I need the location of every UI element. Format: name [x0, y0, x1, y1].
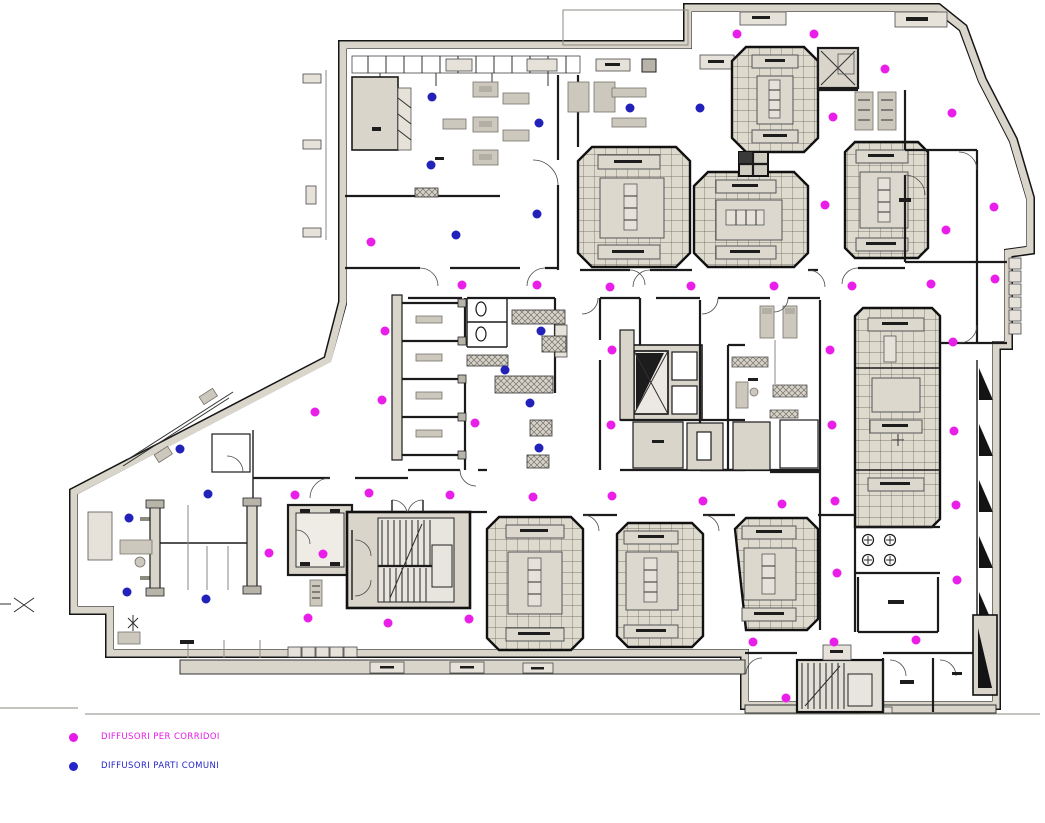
corridor-diffuser-dot [942, 226, 951, 235]
corridor-diffuser-dot-icon [68, 732, 79, 743]
corridor-diffuser-swatch [69, 733, 78, 742]
common-diffuser-dot [696, 104, 705, 113]
corridor-diffuser-dot [810, 30, 819, 39]
corridor-diffuser-dot [384, 619, 393, 628]
corridor-diffuser-dot [533, 281, 542, 290]
corridor-diffuser-dot [990, 203, 999, 212]
corridor-diffuser-dot [529, 493, 538, 502]
common-diffuser-dot [533, 210, 542, 219]
corridor-diffuser-dot [265, 549, 274, 558]
common-diffuser-dot [535, 444, 544, 453]
corridor-diffuser-dot [828, 421, 837, 430]
tiled-room [487, 517, 583, 650]
corridor-diffuser-dot [881, 65, 890, 74]
legend-label-common: DIFFUSORI PARTI COMUNI [101, 761, 219, 771]
main-stairwell [347, 500, 470, 608]
corridor-diffuser-dot [826, 346, 835, 355]
corridor-diffuser-dot [829, 113, 838, 122]
corridor-diffuser-dot [991, 275, 1000, 284]
corridor-diffuser-dot [912, 636, 921, 645]
corridor-diffuser-dot [948, 109, 957, 118]
corridor-diffuser-dot [465, 615, 474, 624]
common-diffuser-dot [452, 231, 461, 240]
corridor-diffuser-dot [782, 694, 791, 703]
common-diffuser-dot [428, 93, 437, 102]
corridor-diffuser-dot [367, 238, 376, 247]
corridor-diffuser-dot [381, 327, 390, 336]
corridor-diffuser-dot [831, 497, 840, 506]
common-diffuser-dot-icon [68, 761, 79, 772]
corridor-diffuser-dot [378, 396, 387, 405]
legend-item-common-diffusers: DIFFUSORI PARTI COMUNI [68, 759, 220, 773]
corridor-diffuser-dot [304, 614, 313, 623]
corridor-diffuser-dot [733, 30, 742, 39]
corridor-diffuser-dot [458, 281, 467, 290]
common-diffuser-swatch [69, 762, 78, 771]
corridor-diffuser-dot [687, 282, 696, 291]
corridor-diffuser-dot [770, 282, 779, 291]
corridor-diffuser-dot [749, 638, 758, 647]
corridor-diffuser-dot [608, 492, 617, 501]
common-diffuser-dot [125, 514, 134, 523]
corridor-diffuser-dot [830, 638, 839, 647]
corridor-diffuser-dot [927, 280, 936, 289]
common-diffuser-dot [204, 490, 213, 499]
corridor-diffuser-dot [821, 201, 830, 210]
corridor-diffuser-dot [952, 501, 961, 510]
common-diffuser-dot [427, 161, 436, 170]
corridor-diffuser-dot [446, 491, 455, 500]
common-diffuser-dot [626, 104, 635, 113]
corridor-diffuser-dot [699, 497, 708, 506]
tiled-room [845, 142, 928, 258]
corridor-diffuser-dot [607, 421, 616, 430]
common-diffuser-dot [537, 327, 546, 336]
tiled-room [732, 47, 818, 152]
common-diffuser-dot [535, 119, 544, 128]
corridor-diffuser-dot [949, 338, 958, 347]
corridor-diffuser-dot [778, 500, 787, 509]
corridor-diffuser-dot [950, 427, 959, 436]
common-diffuser-dot [176, 445, 185, 454]
tiled-room [855, 308, 940, 527]
tiled-room [694, 172, 808, 267]
tiled-room [617, 523, 703, 647]
storage-room [352, 77, 398, 150]
tiled-room [578, 147, 690, 267]
corridor-diffuser-dot [319, 550, 328, 559]
common-diffuser-dot [202, 595, 211, 604]
corridor-diffuser-dot [311, 408, 320, 417]
corridor-diffuser-dot [848, 282, 857, 291]
corridor-diffuser-dot [291, 491, 300, 500]
tiled-room [735, 518, 818, 630]
legend: DIFFUSORI PER CORRIDOI DIFFUSORI PARTI C… [68, 730, 220, 788]
floor-plan-drawing [0, 0, 1045, 823]
corridor-diffuser-dot [608, 346, 617, 355]
common-diffuser-dot [526, 399, 535, 408]
common-diffuser-dot [501, 366, 510, 375]
corridor-diffuser-dot [953, 576, 962, 585]
legend-item-corridor-diffusers: DIFFUSORI PER CORRIDOI [68, 730, 220, 744]
floor-plan-page: DIFFUSORI PER CORRIDOI DIFFUSORI PARTI C… [0, 0, 1045, 823]
corridor-diffuser-dot [833, 569, 842, 578]
legend-label-corridor: DIFFUSORI PER CORRIDOI [101, 732, 220, 742]
corridor-diffuser-dot [606, 283, 615, 292]
corridor-diffuser-dot [365, 489, 374, 498]
corridor-diffuser-dot [471, 419, 480, 428]
survey-mark [0, 598, 34, 612]
common-diffuser-dot [123, 588, 132, 597]
